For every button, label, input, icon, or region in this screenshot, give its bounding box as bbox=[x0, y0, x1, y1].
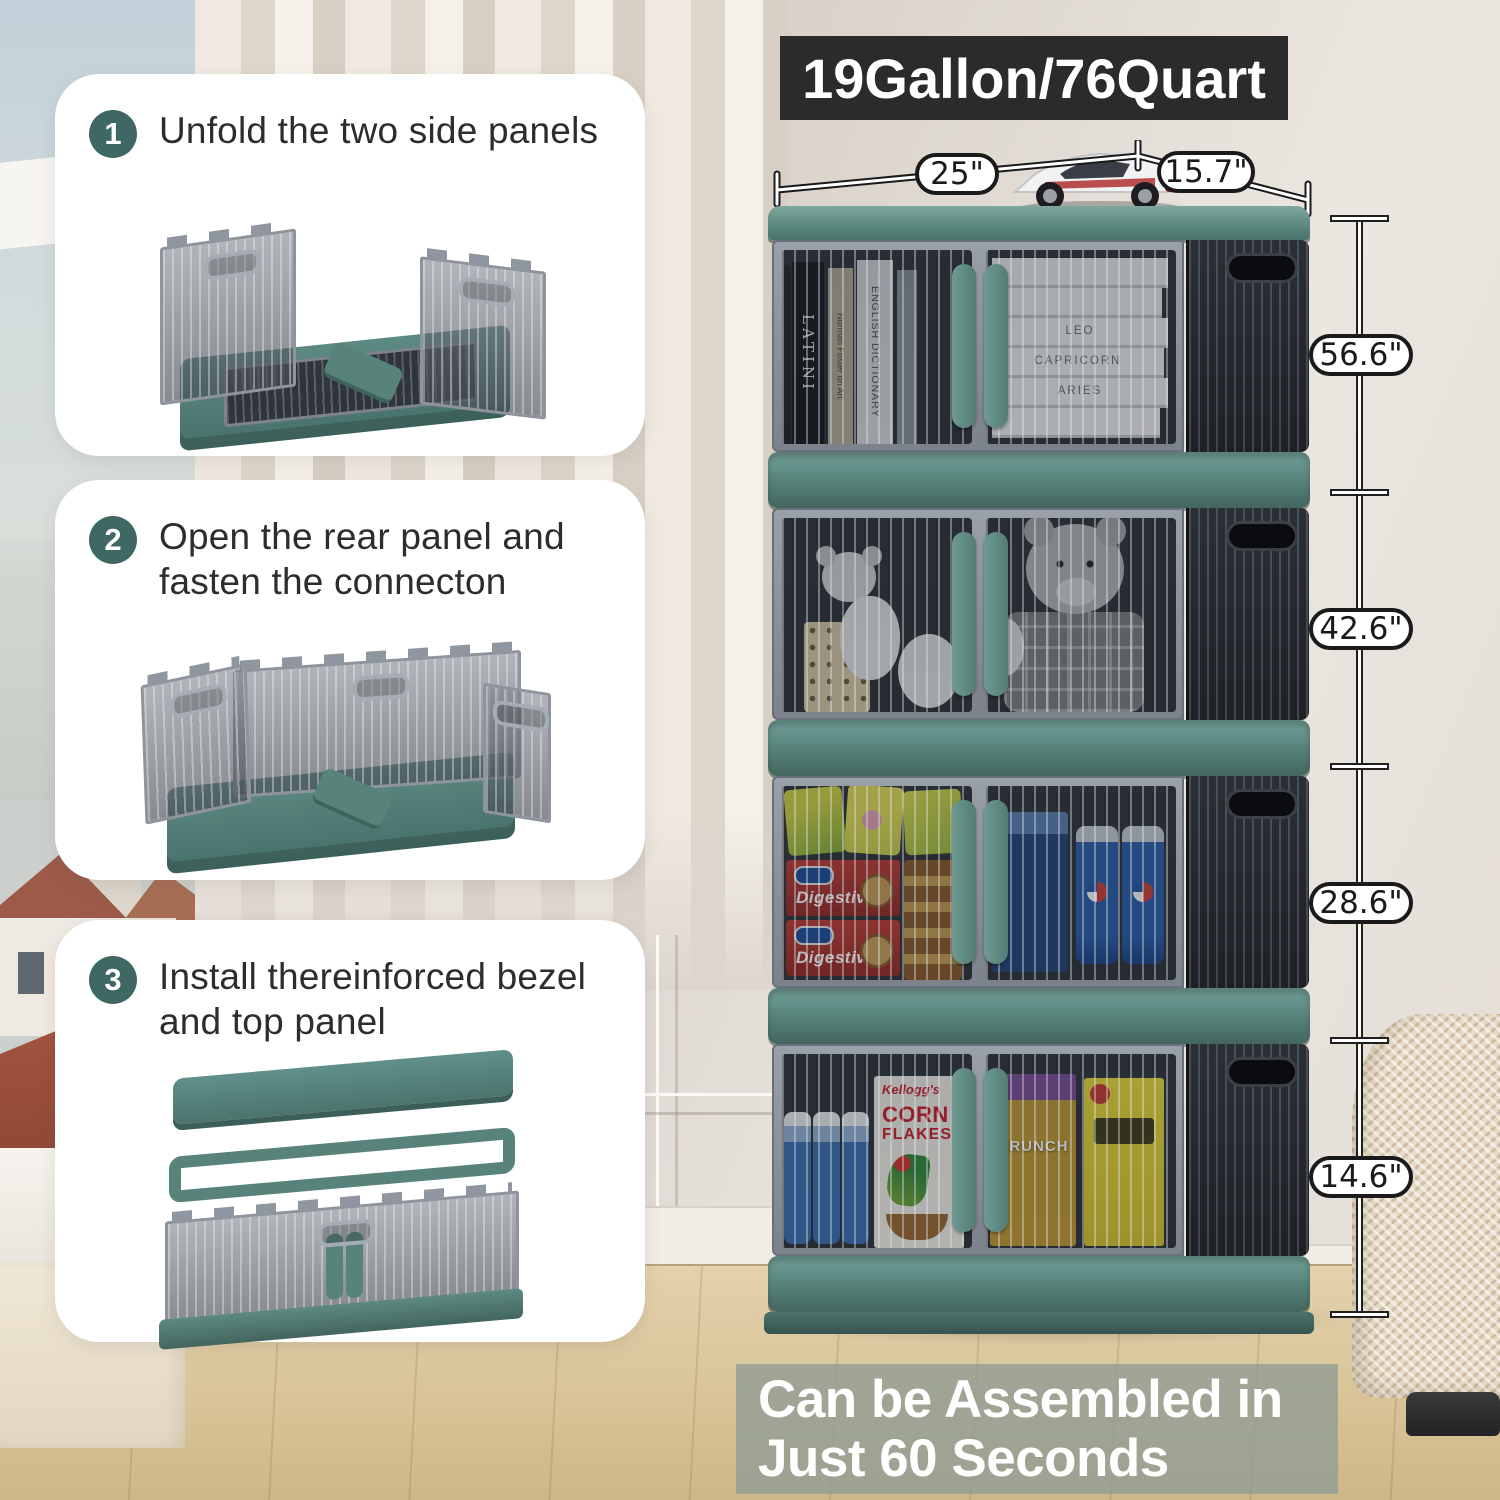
door-handle[interactable] bbox=[984, 800, 1008, 964]
door-glass bbox=[986, 250, 1176, 444]
cabinet-top-lid bbox=[768, 206, 1310, 240]
tier-3-left-door[interactable]: Digestive Digestive bbox=[782, 786, 972, 980]
cabinet-tier-1: LATINI Norman Foster on Art ENGLISH DICT… bbox=[772, 240, 1306, 508]
cabinet-tier-3: Digestive Digestive bbox=[772, 776, 1306, 1044]
dimension-tick bbox=[1332, 1313, 1387, 1316]
door-glass bbox=[782, 786, 972, 980]
product-infographic: 1 Unfold the two side panels 2 Open the … bbox=[0, 0, 1500, 1500]
door-handle[interactable] bbox=[952, 532, 976, 696]
cabinet-tier-4: Kellogg's CORN FLAKES CRUNCH bbox=[772, 1044, 1306, 1312]
step-3-illustration bbox=[115, 1064, 585, 1336]
wall-molding bbox=[656, 935, 678, 1207]
door-handle[interactable] bbox=[952, 1068, 976, 1232]
tier-2-left-door[interactable] bbox=[782, 518, 972, 712]
door-handle[interactable] bbox=[984, 1068, 1008, 1232]
door-glass bbox=[782, 518, 972, 712]
sofa-pouf bbox=[1352, 1014, 1500, 1398]
sofa-foot bbox=[1406, 1392, 1500, 1436]
top-lid bbox=[173, 1049, 513, 1125]
step-2-illustration bbox=[115, 658, 585, 870]
step-card-1: 1 Unfold the two side panels bbox=[55, 74, 645, 456]
tier-3-front: Digestive Digestive bbox=[772, 776, 1184, 988]
side-panel-left bbox=[141, 663, 252, 824]
dimension-tick bbox=[1332, 217, 1387, 220]
assembly-caption: Can be Assembled in Just 60 Seconds bbox=[736, 1364, 1338, 1494]
step-3-text: Install thereinforced bezel and top pane… bbox=[159, 954, 619, 1044]
rear-panel bbox=[233, 650, 521, 798]
tier-3-side-panel bbox=[1186, 776, 1309, 988]
door-glass bbox=[986, 1054, 1176, 1248]
side-panel-right bbox=[420, 256, 546, 419]
tier-1-frame-band bbox=[768, 452, 1310, 508]
tier-3-right-door[interactable] bbox=[986, 786, 1176, 980]
tier-2-front bbox=[772, 508, 1184, 720]
tier-2-side-panel bbox=[1186, 508, 1309, 720]
step-2-number-badge: 2 bbox=[89, 516, 137, 564]
side-handle-cutout[interactable] bbox=[1229, 1060, 1295, 1084]
step-3-number-badge: 3 bbox=[89, 956, 137, 1004]
tier-4-front: Kellogg's CORN FLAKES CRUNCH bbox=[772, 1044, 1184, 1256]
tier-4-left-door[interactable]: Kellogg's CORN FLAKES bbox=[782, 1054, 972, 1248]
door-glass bbox=[986, 518, 1176, 712]
door-handle[interactable] bbox=[984, 264, 1008, 428]
dimension-tick bbox=[1332, 765, 1387, 768]
step-3-header: 3 Install thereinforced bezel and top pa… bbox=[55, 920, 645, 1044]
capacity-banner: 19Gallon/76Quart bbox=[780, 36, 1288, 120]
side-handle-cutout[interactable] bbox=[1229, 256, 1295, 280]
height-badge-4: 14.6" bbox=[1309, 1156, 1413, 1198]
step-1-text: Unfold the two side panels bbox=[159, 108, 598, 153]
storage-cabinet: LATINI Norman Foster on Art ENGLISH DICT… bbox=[772, 206, 1306, 1336]
town-window bbox=[18, 952, 44, 994]
depth-dimension-badge: 15.7" bbox=[1157, 151, 1255, 193]
tier-1-front: LATINI Norman Foster on Art ENGLISH DICT… bbox=[772, 240, 1184, 452]
wall-molding bbox=[645, 1093, 787, 1115]
door-glass bbox=[782, 250, 972, 444]
tier-1-right-door[interactable]: LEO CAPRICORN ARIES bbox=[986, 250, 1176, 444]
door-handle bbox=[326, 1233, 343, 1300]
door-handle bbox=[346, 1231, 363, 1298]
tier-4-side-panel bbox=[1186, 1044, 1309, 1256]
tier-4-frame-band bbox=[768, 1256, 1310, 1312]
width-dimension-badge: 25" bbox=[915, 153, 999, 195]
dimension-tick bbox=[1332, 1039, 1387, 1042]
step-2-header: 2 Open the rear panel and fasten the con… bbox=[55, 480, 645, 604]
caption-line-2: Just 60 Seconds bbox=[758, 1429, 1338, 1488]
tier-3-frame-band bbox=[768, 988, 1310, 1044]
door-handle[interactable] bbox=[984, 532, 1008, 696]
side-panel-left bbox=[160, 228, 296, 405]
tier-1-side-panel bbox=[1186, 240, 1309, 452]
dimension-tick bbox=[1332, 491, 1387, 494]
tier-4-right-door[interactable]: CRUNCH bbox=[986, 1054, 1176, 1248]
caption-line-1: Can be Assembled in bbox=[758, 1370, 1338, 1429]
door-glass bbox=[986, 786, 1176, 980]
step-1-number-badge: 1 bbox=[89, 110, 137, 158]
tier-2-right-door[interactable] bbox=[986, 518, 1176, 712]
cabinet-tier-2 bbox=[772, 508, 1306, 776]
height-badge-2: 42.6" bbox=[1309, 608, 1413, 650]
step-1-header: 1 Unfold the two side panels bbox=[55, 74, 645, 158]
step-1-illustration bbox=[120, 224, 580, 454]
tier-2-frame-band bbox=[768, 720, 1310, 776]
side-handle-cutout[interactable] bbox=[1229, 792, 1295, 816]
step-card-2: 2 Open the rear panel and fasten the con… bbox=[55, 480, 645, 880]
step-2-text: Open the rear panel and fasten the conne… bbox=[159, 514, 619, 604]
side-handle-cutout[interactable] bbox=[1229, 524, 1295, 548]
door-glass bbox=[782, 1054, 972, 1248]
tier-1-left-door[interactable]: LATINI Norman Foster on Art ENGLISH DICT… bbox=[782, 250, 972, 444]
height-badge-1: 56.6" bbox=[1309, 334, 1413, 376]
side-panel-right bbox=[483, 683, 551, 824]
door-handle[interactable] bbox=[952, 264, 976, 428]
step-card-3: 3 Install thereinforced bezel and top pa… bbox=[55, 920, 645, 1342]
door-handle[interactable] bbox=[952, 800, 976, 964]
height-badge-3: 28.6" bbox=[1309, 882, 1413, 924]
cabinet-base bbox=[764, 1312, 1314, 1334]
